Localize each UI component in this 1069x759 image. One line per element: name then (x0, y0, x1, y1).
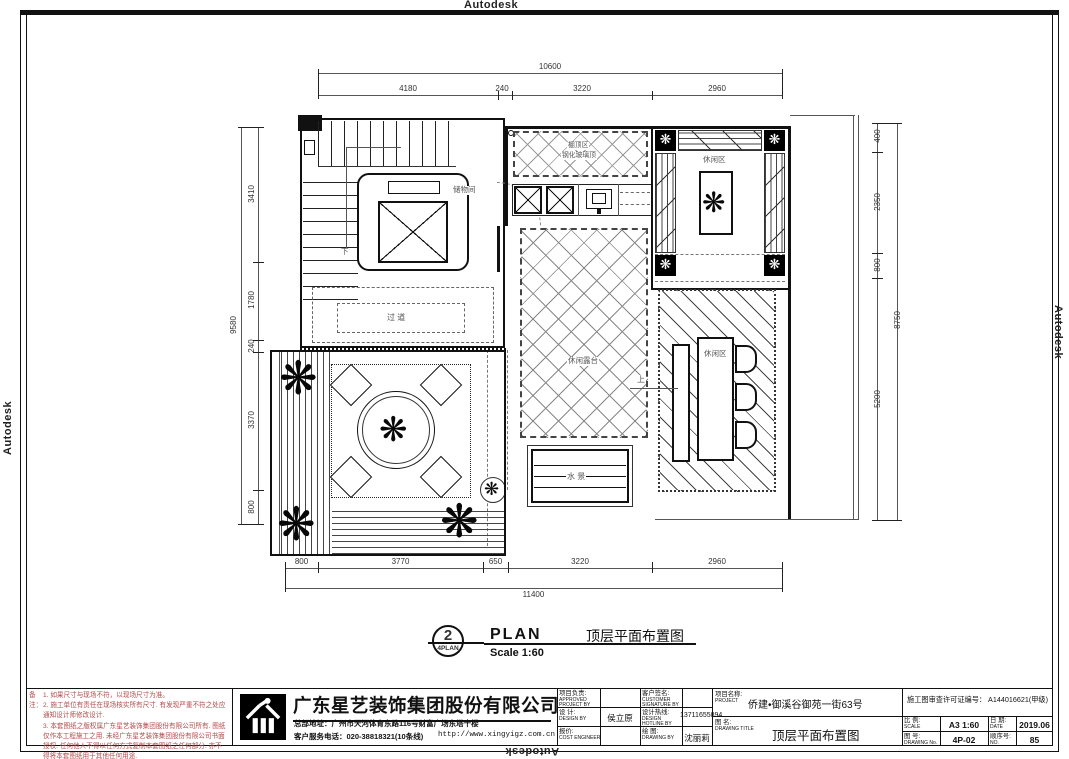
drawing-no-value: 4P-02 (940, 735, 988, 745)
notes-label: 备注： (29, 691, 43, 744)
dim-tick (483, 562, 484, 573)
plan-caption-name: PLAN (490, 626, 542, 644)
dim-tick (253, 490, 264, 491)
terrace-plant-icon-1: ❋ (279, 355, 318, 401)
dim-right-seg1: 400 (874, 124, 882, 148)
dim-tick (512, 91, 513, 100)
water-feature-label: 水 景 (566, 472, 586, 481)
deck-strip-top (678, 130, 762, 151)
dim-bottom-total-line (285, 588, 782, 589)
dim-left-seg4: 3370 (248, 408, 256, 432)
notes-line-2: 2. 施工单位有责任在现场核实所有尺寸. 有发现严重不符之处应通知设计师修改设计… (43, 701, 228, 721)
sequence-no-label-en: NO. (990, 741, 1011, 747)
drawing-sheet: Autodesk Autodesk Autodesk Autodesk 下 储物… (0, 0, 1069, 759)
autodesk-watermark-bottom: Autodesk (505, 745, 559, 757)
dim-top-seg1: 4180 (318, 85, 498, 93)
dim-right-seg2: 2350 (874, 190, 882, 214)
counter-dashed-edge-2 (620, 204, 650, 205)
dim-top-seg-line (318, 95, 782, 96)
east-wall (788, 126, 791, 520)
dim-tick (872, 253, 883, 254)
dim-tick (238, 127, 264, 128)
autodesk-watermark-top: Autodesk (464, 0, 518, 11)
stairs-left-run (303, 170, 358, 300)
drawing-title-value: 顶层平面布置图 (772, 725, 860, 744)
leisure-top-label: 休闲区 (702, 156, 727, 165)
drawn-by-cell: 绘 图: DRAWING BY (642, 728, 674, 741)
permit-row-line (902, 716, 1053, 717)
dim-tick (508, 562, 509, 573)
sequence-no-value: 85 (1016, 735, 1053, 745)
dim-tick (498, 91, 499, 100)
design-hotline-value: 13711655894 (680, 712, 714, 719)
top-band (20, 10, 1059, 15)
cost-engineer-label-en: COST ENGINEER (559, 736, 600, 742)
dim-left-seg-line (258, 127, 259, 524)
company-logo (240, 694, 286, 740)
rosette-icon-sw: ❋ (655, 255, 676, 276)
bench (672, 344, 690, 462)
deck-strip-left (655, 153, 676, 253)
project-cell: 项目名称: PROJECT (715, 691, 742, 704)
drawing-title-cell: 图 名: DRAWING TITLE (715, 719, 754, 732)
chair-1 (735, 345, 757, 373)
dim-bottom-seg5: 2960 (652, 558, 782, 566)
dim-right-seg3: 800 (874, 253, 882, 277)
dim-left-seg5: 800 (248, 495, 256, 519)
scale-value: A3 1:60 (940, 720, 988, 730)
rosette-icon-ne: ❋ (764, 130, 785, 151)
dim-tick (238, 524, 264, 525)
stair-direction-line-h (346, 147, 401, 148)
dim-tick (782, 562, 783, 592)
autodesk-watermark-right: Autodesk (1052, 305, 1064, 375)
customer-signature-label-en: CUSTOMER SIGNATURE BY (642, 698, 682, 709)
dim-tick (872, 278, 883, 279)
skylight-label-line2: 钢化玻璃顶 (561, 152, 597, 160)
dim-left-seg3: 240 (248, 334, 256, 358)
drawn-by-label-en: DRAWING BY (642, 736, 674, 742)
dim-top-total: 10600 (318, 63, 782, 71)
company-address: 总部地址：广州市天河体育东路116号财富广场东塔十楼 (294, 718, 479, 729)
plan-caption-title-cn: 顶层平面布置图 (586, 626, 684, 646)
step-up-line (630, 388, 678, 389)
terrace-plant-icon-2: ❋ (277, 501, 316, 547)
notes-cell: 备注： 1. 如果尺寸与现场不符，以现场尺寸为准。 2. 施工单位有责任在现场核… (26, 688, 232, 746)
dim-bottom-seg3: 650 (481, 558, 510, 566)
design-by-label-en: DESIGN BY (559, 717, 586, 723)
titleblock-divider (232, 688, 233, 746)
leisure-terrace-area (520, 228, 648, 438)
deck-strip-right (764, 153, 785, 253)
sink-faucet (597, 209, 601, 214)
dim-left-seg1: 3410 (248, 182, 256, 206)
company-phone: 客户服务电话：020-38818321(10条线) (294, 731, 423, 742)
notes-line-1: 1. 如果尺寸与现场不符，以现场尺寸为准。 (43, 691, 228, 701)
cabinet-unit-1 (514, 186, 542, 214)
east-boundary-top (790, 115, 855, 116)
dim-top-seg4: 2960 (652, 85, 782, 93)
dim-tick (253, 262, 264, 263)
dim-bottom-seg1: 800 (283, 558, 320, 566)
stairs-down-label: 下 (340, 248, 350, 257)
dim-left-total-line (241, 127, 242, 524)
dim-top-total-line (318, 73, 782, 74)
dim-right-seg4: 5200 (874, 387, 882, 411)
drawn-by-value: 沈丽莉 (682, 732, 712, 744)
dim-tick (253, 340, 264, 341)
dim-bottom-seg2: 3770 (318, 558, 483, 566)
drawing-no-label-en: DRAWING No. (904, 741, 937, 747)
design-by-cell: 设 计: DESIGN BY (559, 709, 586, 722)
chair-3 (735, 421, 757, 449)
east-boundary-line-2 (858, 115, 859, 520)
dim-tick (652, 91, 653, 100)
dim-tick (872, 520, 902, 521)
dim-right-seg-line (877, 123, 878, 520)
project-row-line (712, 716, 902, 717)
cost-engineer-cell: 报价: COST ENGINEER (559, 728, 600, 741)
step-up-label: 上 (636, 375, 646, 384)
corridor-label: 过 道 (386, 313, 406, 322)
rosette-icon-se: ❋ (764, 255, 785, 276)
east-boundary-line-1 (853, 115, 854, 520)
leisure-terrace-label: 休闲露台 (567, 357, 599, 366)
date-cell: 日 期: DATE (990, 717, 1006, 730)
door-leaf (497, 226, 500, 272)
skylight-label-line1: 棚顶区 (567, 142, 589, 150)
design-hotline-label-en: DESIGN HOTLINE BY (642, 717, 682, 728)
dim-top-seg3: 3220 (512, 85, 652, 93)
approved-by-cell: 项目负责: APPROVED PROJECT BY (559, 690, 599, 709)
leisure-top-dashed-2 (655, 281, 785, 282)
chair-2 (735, 383, 757, 411)
dim-tick (872, 123, 902, 124)
scale-cell: 比 例: SCALE (904, 717, 920, 730)
company-website: http://www.xingyigz.com.cn (438, 731, 555, 739)
south-boundary-right (655, 519, 859, 520)
dim-tick (872, 152, 883, 153)
dim-bottom-seg4: 3220 (508, 558, 652, 566)
date-value: 2019.06 (1016, 720, 1053, 730)
scale-label-en: SCALE (904, 725, 920, 731)
elevator-car-symbol (378, 201, 448, 263)
approved-by-label-en: APPROVED PROJECT BY (559, 698, 599, 709)
autodesk-watermark-left: Autodesk (2, 385, 14, 455)
walkway-dashed-right (507, 350, 508, 490)
planter-plant-icon: ❋ (702, 189, 725, 217)
counter-dashed-edge-1 (620, 192, 650, 193)
project-value: 侨建•御溪谷御苑一街63号 (748, 696, 863, 711)
dim-tick (253, 352, 264, 353)
dim-tick (285, 562, 286, 592)
elevator-door-panel (388, 181, 440, 194)
dim-right-total: 8750 (894, 308, 902, 332)
wall-left-of-skylight (505, 126, 508, 226)
terrace-plant-icon-3: ❋ (440, 498, 479, 544)
house-hammer-icon (240, 694, 286, 740)
dim-tick (652, 562, 653, 573)
stair-direction-line-v (346, 147, 347, 252)
cabinet-divider-1 (578, 184, 579, 216)
dim-tick (782, 69, 783, 99)
plan-marker-line (428, 642, 484, 644)
dim-tick (318, 562, 319, 573)
date-label-en: DATE (990, 725, 1006, 731)
dim-bottom-total: 11400 (285, 591, 782, 599)
table-centerpiece-plant-icon: ❋ (379, 413, 408, 447)
customer-signature-cell: 客户签名: CUSTOMER SIGNATURE BY (642, 690, 682, 709)
project-label-en: PROJECT (715, 699, 742, 705)
notes-line-3: 3. 本套图纸之版权属广东星艺装饰集团股份有限公司所有. 图纸仅作本工程施工之用… (43, 722, 228, 759)
design-hotline-cell: 设计热线: DESIGN HOTLINE BY (642, 709, 682, 728)
storage-room-label: 储物间 (452, 186, 477, 195)
rosette-icon-nw: ❋ (655, 130, 676, 151)
dim-tick (318, 69, 319, 99)
design-by-value: 侯立原 (600, 712, 640, 724)
sequence-no-cell: 顺序号: NO. (990, 733, 1011, 746)
leisure-bottom-label: 休闲区 (703, 350, 728, 359)
cabinet-divider-2 (618, 184, 619, 216)
sink-basin (592, 193, 606, 204)
drawing-no-cell: 图 号: DRAWING No. (904, 733, 937, 746)
stairs-upper-run (318, 121, 456, 167)
dim-left-seg2: 1780 (248, 288, 256, 312)
wall-niche (304, 140, 315, 155)
plan-marker-number: 2 (432, 628, 464, 643)
dim-left-total: 9580 (230, 313, 238, 337)
cabinet-unit-2 (546, 186, 574, 214)
drawing-title-label-en: DRAWING TITLE (715, 727, 754, 733)
leisure-top-dashed-1 (655, 254, 785, 255)
dim-bottom-seg-line (285, 568, 782, 569)
plan-caption-scale: Scale 1:60 (490, 647, 544, 659)
plan-marker-sub: 4PLAN (430, 646, 466, 653)
permit-number: 施工图审查许可证编号： A144016621(甲级) (907, 695, 1048, 705)
